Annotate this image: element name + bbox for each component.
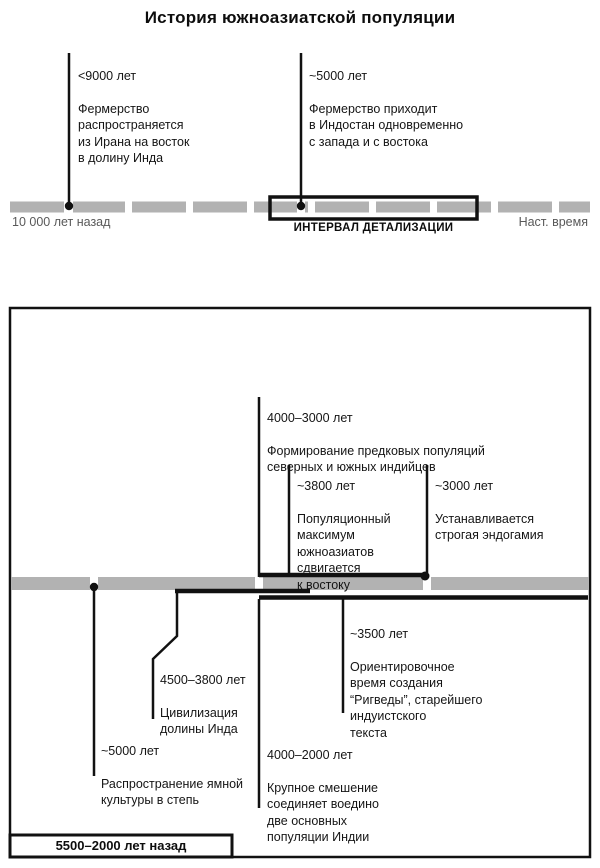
range-label: 5500–2000 лет назад bbox=[10, 838, 232, 853]
timeline-infographic: История южноазиатской популяции <9000 ле… bbox=[0, 0, 600, 868]
detail-interval-label: ИНТЕРВАЛ ДЕТАЛИЗАЦИИ bbox=[270, 222, 477, 234]
event-years: ~3800 лет bbox=[297, 478, 391, 495]
event-farming-hindustan: ~5000 лет Фермерство приходит в Индостан… bbox=[309, 51, 463, 167]
event-years: <9000 лет bbox=[78, 68, 189, 85]
event-population-maximum: ~3800 лет Популяционный максимум южноази… bbox=[297, 461, 391, 610]
axis-start-label: 10 000 лет назад bbox=[12, 215, 110, 229]
connector-5000-yamnaya bbox=[90, 583, 98, 776]
page-title: История южноазиатской популяции bbox=[0, 8, 600, 28]
event-years: 4000–3000 лет bbox=[267, 410, 485, 427]
event-years: ~5000 лет bbox=[101, 743, 243, 760]
event-text: Распространение ямной культуры в степь bbox=[101, 776, 243, 809]
event-text: Популяционный максимум южноазиатов сдвиг… bbox=[297, 511, 391, 594]
connector-farming-iran bbox=[65, 53, 73, 210]
axis-end-label: Наст. время bbox=[519, 215, 588, 229]
event-yamnaya-steppe: ~5000 лет Распространение ямной культуры… bbox=[101, 726, 243, 825]
event-major-admixture: 4000–2000 лет Крупное смешение соединяет… bbox=[267, 730, 379, 862]
event-text: Крупное смешение соединяет воедино две о… bbox=[267, 780, 379, 846]
event-text: Устанавливается строгая эндогамия bbox=[435, 511, 543, 544]
event-text: Фермерство приходит в Индостан одновреме… bbox=[309, 101, 463, 151]
connector-farming-hindustan bbox=[297, 53, 305, 210]
event-text: Ориентировочное время создания “Ригведы”… bbox=[350, 659, 483, 742]
event-years: 4500–3800 лет bbox=[160, 672, 246, 689]
event-strict-endogamy: ~3000 лет Устанавливается строгая эндога… bbox=[435, 461, 543, 560]
event-years: 4000–2000 лет bbox=[267, 747, 379, 764]
event-years: ~5000 лет bbox=[309, 68, 463, 85]
event-years: ~3500 лет bbox=[350, 626, 483, 643]
event-text: Фермерство распространяется из Ирана на … bbox=[78, 101, 189, 167]
event-farming-iran: <9000 лет Фермерство распространяется из… bbox=[78, 51, 189, 183]
event-years: ~3000 лет bbox=[435, 478, 543, 495]
